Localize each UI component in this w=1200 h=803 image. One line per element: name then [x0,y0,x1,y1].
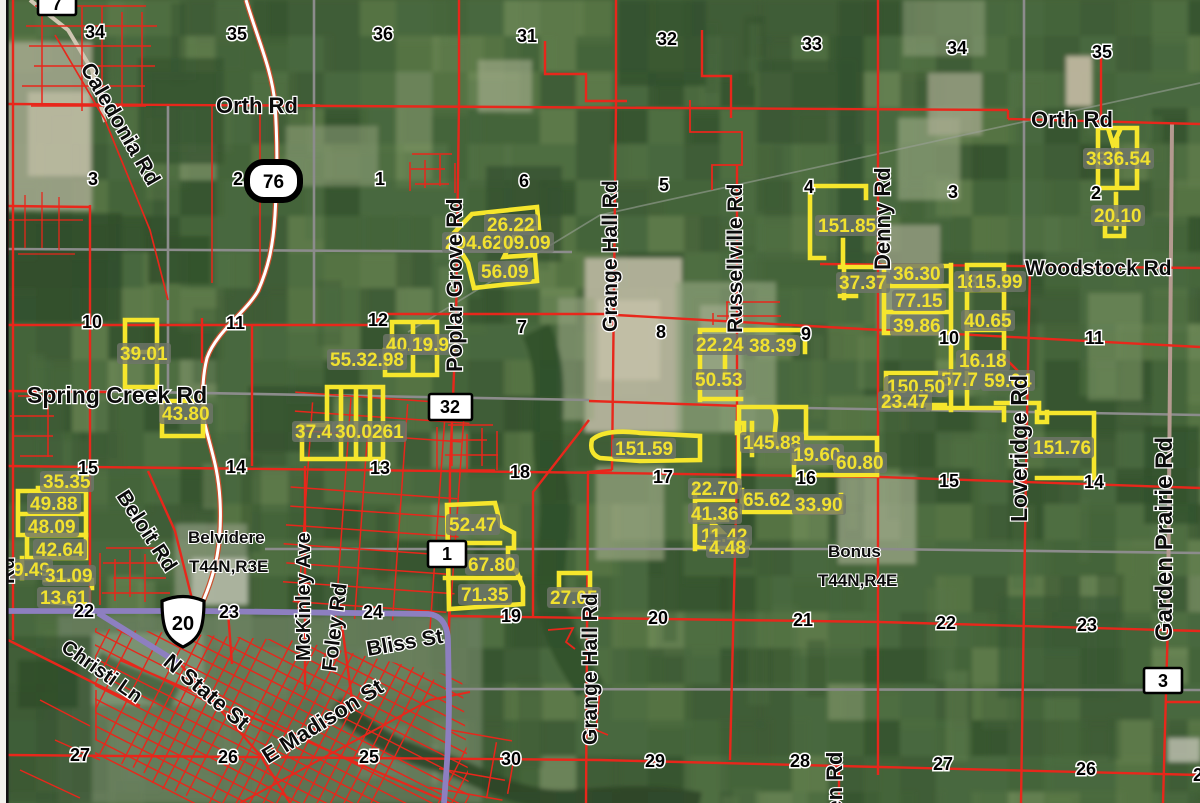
svg-text:26: 26 [1076,759,1096,779]
svg-text:16.18: 16.18 [959,351,1007,372]
svg-text:29: 29 [645,751,665,771]
svg-text:39.86: 39.86 [893,316,941,337]
svg-text:151.85: 151.85 [818,216,877,237]
svg-text:1: 1 [442,544,452,564]
svg-text:151.76: 151.76 [1033,438,1091,459]
svg-text:71.35: 71.35 [461,585,509,606]
svg-text:10: 10 [939,328,959,348]
svg-text:Russellville Rd: Russellville Rd [724,184,747,333]
svg-text:26: 26 [218,747,238,767]
svg-text:Orth Rd: Orth Rd [1031,107,1113,132]
svg-text:McKinley Ave: McKinley Ave [293,532,315,661]
svg-text:20: 20 [648,608,668,628]
svg-text:31: 31 [517,26,537,46]
svg-text:76: 76 [263,172,284,193]
svg-text:36: 36 [373,24,393,44]
svg-text:22.70: 22.70 [691,479,739,500]
svg-text:28: 28 [790,751,810,771]
svg-text:20.10: 20.10 [1094,206,1142,227]
svg-text:22: 22 [936,613,956,633]
svg-text:6: 6 [519,171,529,191]
svg-text:41.36: 41.36 [691,504,739,525]
svg-text:48.09: 48.09 [28,517,76,538]
svg-text:33.90: 33.90 [795,495,843,516]
svg-text:13: 13 [370,458,390,478]
svg-text:8: 8 [656,322,666,342]
svg-text:67.80: 67.80 [468,555,516,576]
svg-text:19: 19 [501,606,521,626]
svg-text:31.09: 31.09 [45,566,93,587]
svg-text:Spring Creek Rd: Spring Creek Rd [27,382,207,408]
svg-text:40.65: 40.65 [964,311,1012,332]
svg-text:27: 27 [70,745,90,765]
svg-text:2: 2 [1091,183,1101,203]
svg-text:16: 16 [796,468,816,488]
svg-text:11: 11 [1085,328,1104,348]
svg-text:Poplar Grove Rd: Poplar Grove Rd [442,198,467,372]
svg-text:18: 18 [510,462,530,482]
svg-text:Orth Rd: Orth Rd [216,93,298,118]
svg-text:Bonus: Bonus [828,542,881,561]
svg-text:56.09: 56.09 [481,262,529,283]
svg-text:T44N,R3E: T44N,R3E [189,557,268,576]
svg-text:14: 14 [1084,472,1104,492]
svg-text:Loveridge Rd: Loveridge Rd [1006,375,1032,522]
svg-text:50.53: 50.53 [695,370,743,391]
svg-text:30.0261: 30.0261 [335,422,404,443]
svg-text:21: 21 [793,610,813,630]
svg-text:T44N,R4E: T44N,R4E [818,571,897,590]
svg-text:60.80: 60.80 [836,453,884,474]
svg-text:23: 23 [1077,615,1097,635]
svg-text:23.47: 23.47 [881,392,929,413]
svg-text:7: 7 [52,0,62,14]
svg-text:10: 10 [82,312,102,332]
svg-text:27: 27 [933,754,953,774]
svg-text:36.54: 36.54 [1103,149,1151,170]
svg-text:Belvidere: Belvidere [188,528,265,547]
svg-text:15.99: 15.99 [975,272,1023,293]
svg-text:20: 20 [172,613,194,635]
svg-text:4: 4 [804,177,814,197]
svg-text:09.09: 09.09 [503,233,551,254]
svg-text:24: 24 [363,602,383,622]
svg-text:Grange Hall Rd: Grange Hall Rd [599,180,622,332]
svg-text:37.4: 37.4 [295,422,332,443]
svg-text:34: 34 [85,22,105,42]
svg-text:3: 3 [948,182,958,202]
svg-text:77.15: 77.15 [895,291,943,312]
svg-text:5: 5 [659,175,669,195]
svg-text:11: 11 [226,313,245,333]
svg-text:22: 22 [74,601,94,621]
svg-text:34: 34 [947,38,967,58]
svg-text:3: 3 [1158,671,1168,691]
svg-text:Woodstock Rd: Woodstock Rd [1025,257,1172,280]
svg-text:23: 23 [219,602,239,622]
svg-text:32: 32 [440,397,460,417]
svg-text:Denny Rd: Denny Rd [870,167,895,270]
svg-text:32: 32 [657,29,677,49]
svg-text:42.64: 42.64 [36,540,84,561]
svg-text:151.59: 151.59 [615,439,673,460]
svg-text:39.01: 39.01 [120,344,168,365]
svg-text:15: 15 [939,471,959,491]
svg-text:9: 9 [801,324,811,344]
svg-text:3: 3 [88,169,98,189]
svg-text:35: 35 [227,24,247,44]
svg-text:4.48: 4.48 [709,538,746,559]
svg-text:Garden Prairie Rd: Garden Prairie Rd [1151,437,1178,641]
svg-text:37.37: 37.37 [839,273,887,294]
svg-text:36.30: 36.30 [893,264,941,285]
svg-text:Grange Hall Rd: Grange Hall Rd [579,593,602,745]
svg-text:2: 2 [233,169,243,189]
svg-text:35: 35 [1092,42,1112,62]
svg-text:1: 1 [375,169,385,189]
svg-text:14: 14 [226,457,246,477]
svg-text:7: 7 [517,317,527,337]
svg-text:52.47: 52.47 [449,515,497,536]
svg-text:33: 33 [802,34,822,54]
svg-text:Garden Rd: Garden Rd [822,752,847,803]
svg-text:55.32.98: 55.32.98 [330,350,404,371]
svg-text:30: 30 [501,749,521,769]
svg-text:25: 25 [1193,765,1200,785]
svg-text:15: 15 [78,458,98,478]
svg-text:38.39: 38.39 [749,336,797,357]
svg-text:65.62: 65.62 [743,490,791,511]
svg-text:25: 25 [359,747,379,767]
svg-text:12: 12 [368,310,388,330]
svg-text:22.24: 22.24 [696,335,744,356]
svg-text:17: 17 [653,467,673,487]
svg-text:49.88: 49.88 [30,494,78,515]
